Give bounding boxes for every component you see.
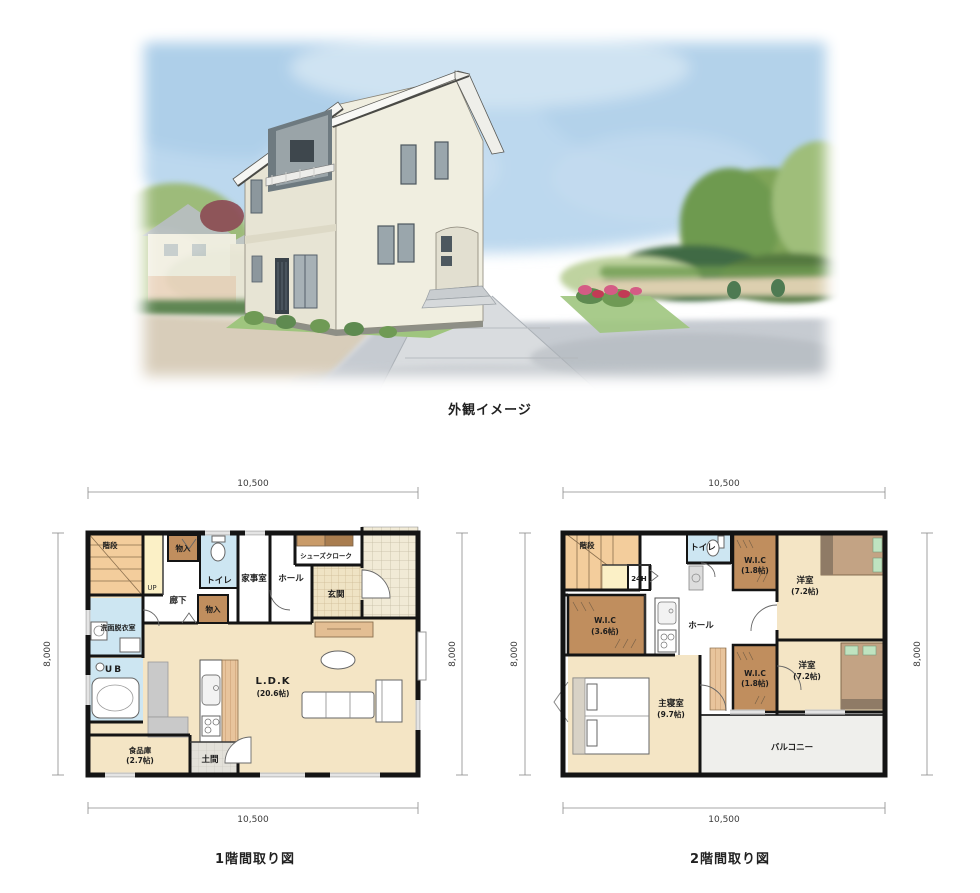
- label-stairs: 階段: [103, 540, 118, 550]
- label2-vent: 24H: [631, 575, 647, 583]
- label2-master-size: (9.7帖): [657, 709, 685, 719]
- label2-toilet: トイレ: [690, 543, 716, 553]
- room2-wic-mid: [568, 595, 645, 655]
- svg-text:8,000: 8,000: [510, 641, 520, 667]
- label2-wic-bottom-size: (1.8帖): [741, 678, 769, 688]
- label2-wic-top: W.I.C: [744, 556, 766, 565]
- svg-text:10,500: 10,500: [708, 815, 740, 825]
- label-toilet: トイレ: [206, 576, 232, 586]
- label2-master: 主寝室: [658, 698, 684, 709]
- label2-bedroom2: 洋室: [798, 660, 816, 671]
- label2-bedroom1-size: (7.2帖): [791, 586, 819, 596]
- label-utility: 家事室: [241, 573, 267, 584]
- svg-text:10,500: 10,500: [237, 479, 269, 489]
- label2-wic-bottom: W.I.C: [744, 669, 766, 678]
- label2-bedroom2-size: (7.2帖): [793, 671, 821, 681]
- hall-counter: [655, 598, 679, 656]
- label2-balcony: バルコニー: [771, 742, 813, 753]
- floor2-plan: 階段 24H トイレ W.I.C (1.8帖) 洋室 (7.2帖) W.I.C …: [505, 470, 955, 830]
- label-shoes-closet: シューズクローク: [300, 551, 352, 560]
- label2-wic-mid-size: (3.6帖): [591, 626, 619, 636]
- exterior-caption: 外観イメージ: [0, 399, 980, 418]
- label-storage1: 物入: [176, 543, 191, 553]
- label2-stairs: 階段: [580, 540, 595, 550]
- label2-wic-mid: W.I.C: [594, 616, 616, 625]
- label-ldk: L.D.K: [255, 676, 290, 687]
- label-hall: ホール: [278, 574, 304, 584]
- label2-wic-top-size: (1.8帖): [741, 565, 769, 575]
- svg-text:10,500: 10,500: [708, 479, 740, 489]
- presentation-sheet: 外観イメージ: [0, 0, 980, 893]
- label2-hall: ホール: [688, 621, 714, 631]
- svg-text:10,500: 10,500: [237, 815, 269, 825]
- label-bath: UB: [105, 665, 123, 675]
- svg-text:8,000: 8,000: [448, 641, 458, 667]
- svg-text:8,000: 8,000: [913, 641, 923, 667]
- label-up: UP: [147, 584, 156, 592]
- label2-bedroom1: 洋室: [796, 575, 814, 586]
- label-entrance: 玄関: [327, 589, 344, 600]
- floor1-plan: 階段 UP 物入 トイレ 家事室 廊下 物入 ホール シューズクローク 玄関 洗…: [30, 470, 480, 830]
- label-washroom: 洗面脱衣室: [101, 623, 136, 632]
- label-doma: 土間: [201, 754, 218, 765]
- label-corridor: 廊下: [169, 595, 187, 606]
- svg-text:8,000: 8,000: [43, 641, 53, 667]
- floor1-caption: 1階間取り図: [30, 848, 480, 867]
- label-pantry-size: (2.7帖): [126, 755, 154, 765]
- label-ldk-size: (20.6帖): [257, 688, 290, 698]
- label-storage2: 物入: [206, 604, 221, 614]
- bay-window: [418, 632, 426, 680]
- exterior-rendering: [130, 28, 840, 393]
- floor2-caption: 2階間取り図: [505, 848, 955, 867]
- label-pantry: 食品庫: [129, 745, 152, 755]
